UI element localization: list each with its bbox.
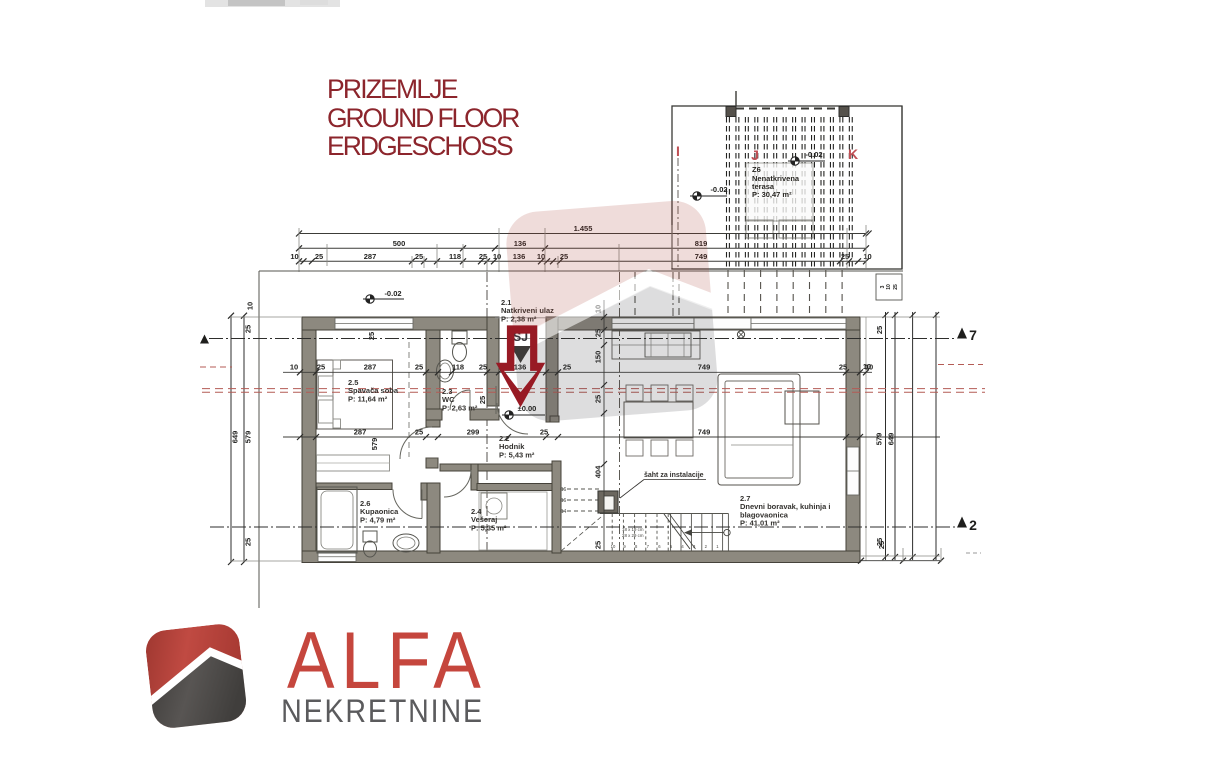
svg-text:-0.02: -0.02 bbox=[710, 185, 727, 194]
svg-text:P: 11,64 m²: P: 11,64 m² bbox=[348, 394, 388, 403]
svg-text:6: 6 bbox=[658, 544, 661, 549]
svg-text:Z6: Z6 bbox=[752, 165, 761, 174]
svg-text:25: 25 bbox=[540, 428, 548, 437]
svg-text:25: 25 bbox=[415, 363, 423, 372]
svg-text:šaht za instalacije: šaht za instalacije bbox=[644, 472, 704, 479]
svg-text:287: 287 bbox=[364, 252, 377, 261]
svg-text:10: 10 bbox=[290, 252, 298, 261]
svg-text:10: 10 bbox=[246, 302, 255, 310]
svg-text:P: 41,01 m²: P: 41,01 m² bbox=[740, 519, 780, 528]
svg-text:25: 25 bbox=[415, 252, 423, 261]
svg-text:J: J bbox=[751, 147, 759, 163]
svg-text:287: 287 bbox=[364, 363, 377, 372]
svg-text:25: 25 bbox=[839, 363, 847, 372]
svg-text:5: 5 bbox=[670, 544, 673, 549]
svg-text:P: 5,43 m²: P: 5,43 m² bbox=[499, 450, 535, 459]
svg-text:P: 4,79 m²: P: 4,79 m² bbox=[360, 515, 396, 524]
svg-text:8: 8 bbox=[635, 544, 638, 549]
svg-text:299: 299 bbox=[467, 428, 480, 437]
svg-text:749: 749 bbox=[698, 428, 711, 437]
svg-text:K: K bbox=[848, 146, 858, 162]
svg-text:25: 25 bbox=[415, 428, 423, 437]
svg-text:7: 7 bbox=[969, 327, 977, 343]
svg-text:25: 25 bbox=[875, 326, 884, 334]
svg-text:25: 25 bbox=[594, 541, 603, 549]
svg-text:287: 287 bbox=[354, 428, 367, 437]
svg-text:16: 16 bbox=[561, 487, 567, 493]
svg-text:PRIZEMLJE: PRIZEMLJE bbox=[327, 74, 458, 104]
svg-text:NEKRETNINE: NEKRETNINE bbox=[281, 693, 484, 729]
svg-text:25: 25 bbox=[478, 396, 487, 404]
svg-text:10: 10 bbox=[290, 363, 298, 372]
svg-text:649: 649 bbox=[231, 431, 240, 444]
svg-text:2: 2 bbox=[969, 517, 977, 533]
svg-text:500: 500 bbox=[393, 239, 406, 248]
svg-text:ERDGESCHOSS: ERDGESCHOSS bbox=[327, 131, 513, 161]
svg-text:649: 649 bbox=[887, 433, 896, 446]
svg-text:GROUND FLOOR: GROUND FLOOR bbox=[327, 103, 519, 133]
svg-text:25: 25 bbox=[893, 284, 899, 290]
svg-text:P: 30,47 m²: P: 30,47 m² bbox=[752, 190, 792, 199]
svg-text:7: 7 bbox=[647, 544, 650, 549]
svg-text:14: 14 bbox=[561, 509, 567, 515]
svg-text:3: 3 bbox=[693, 544, 696, 549]
svg-text:25: 25 bbox=[244, 538, 253, 546]
svg-text:P: 2,63 m²: P: 2,63 m² bbox=[442, 403, 478, 412]
svg-text:I: I bbox=[676, 143, 680, 159]
svg-text:25: 25 bbox=[479, 363, 487, 372]
svg-text:579: 579 bbox=[875, 433, 884, 446]
svg-text:118: 118 bbox=[449, 252, 461, 261]
svg-text:9: 9 bbox=[623, 544, 626, 549]
svg-text:2: 2 bbox=[705, 544, 708, 549]
svg-text:18 x 19 cm: 18 x 19 cm bbox=[622, 527, 644, 532]
svg-text:10: 10 bbox=[863, 362, 871, 371]
svg-text:1: 1 bbox=[716, 544, 719, 549]
svg-text:579: 579 bbox=[370, 438, 379, 451]
svg-text:-0.02: -0.02 bbox=[805, 150, 822, 159]
svg-text:10: 10 bbox=[611, 544, 616, 549]
svg-text:P: 5,35 m²: P: 5,35 m² bbox=[471, 523, 507, 532]
svg-text:25: 25 bbox=[244, 325, 253, 333]
svg-text:4: 4 bbox=[681, 544, 684, 549]
svg-text:16: 16 bbox=[561, 498, 567, 504]
svg-text:-0.02: -0.02 bbox=[384, 289, 401, 298]
svg-text:25: 25 bbox=[877, 541, 886, 549]
svg-text:579: 579 bbox=[244, 431, 253, 444]
svg-text:25: 25 bbox=[315, 252, 323, 261]
svg-text:28 x 29 cm: 28 x 29 cm bbox=[622, 533, 644, 538]
svg-text:10: 10 bbox=[886, 284, 892, 290]
svg-text:10: 10 bbox=[493, 252, 501, 261]
